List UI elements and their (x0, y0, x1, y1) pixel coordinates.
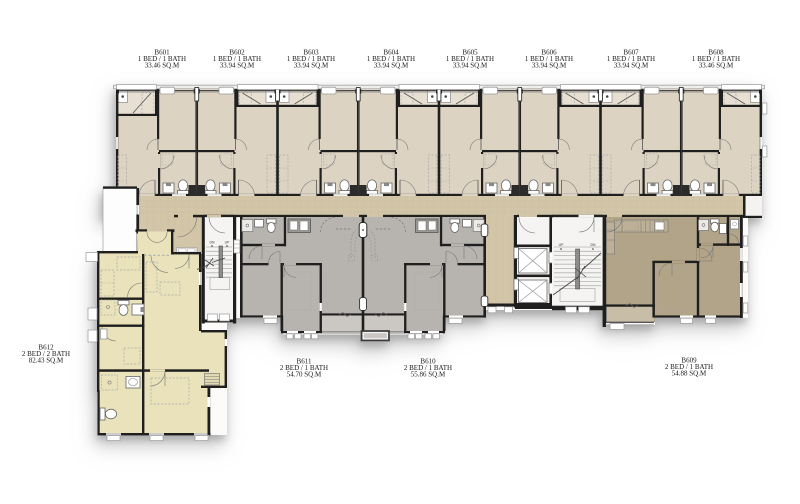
svg-text:33.46 SQ.M: 33.46 SQ.M (145, 62, 180, 70)
svg-text:54.88 SQ.M: 54.88 SQ.M (672, 370, 707, 378)
svg-text:54.70 SQ.M: 54.70 SQ.M (287, 371, 322, 379)
svg-text:33.94 SQ.M: 33.94 SQ.M (374, 62, 409, 70)
svg-text:33.94 SQ.M: 33.94 SQ.M (220, 62, 255, 70)
svg-text:33.46 SQ.M: 33.46 SQ.M (699, 62, 734, 70)
svg-text:82.43 SQ.M: 82.43 SQ.M (29, 357, 64, 365)
svg-text:DN: DN (210, 241, 215, 245)
svg-text:DN: DN (591, 243, 596, 247)
svg-text:33.94 SQ.M: 33.94 SQ.M (532, 62, 567, 70)
svg-text:UP: UP (559, 243, 564, 247)
svg-text:33.94 SQ.M: 33.94 SQ.M (453, 62, 488, 70)
svg-text:UP: UP (225, 241, 230, 245)
svg-text:33.94 SQ.M: 33.94 SQ.M (294, 62, 329, 70)
svg-text:33.94 SQ.M: 33.94 SQ.M (614, 62, 649, 70)
svg-text:55.86 SQ.M: 55.86 SQ.M (411, 371, 446, 379)
